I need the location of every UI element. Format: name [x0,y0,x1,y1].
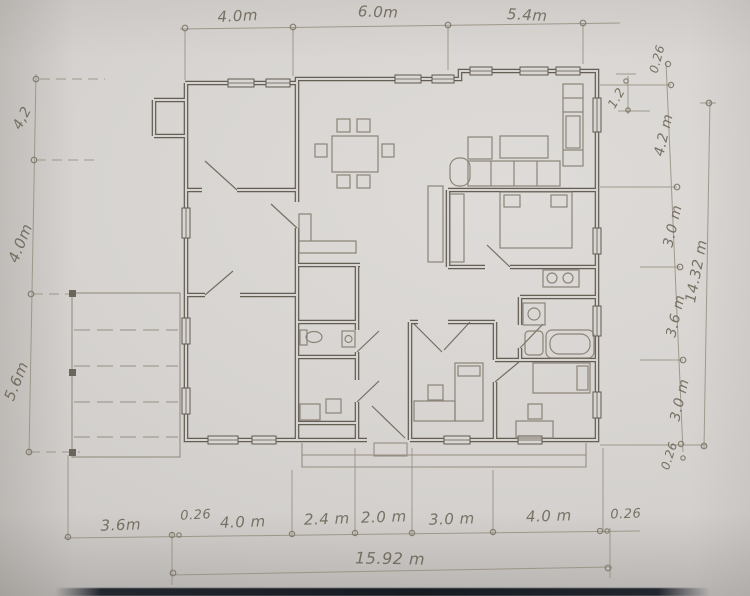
dim-top-1: 4.0m [217,6,258,26]
dim-right-6: 3.0 m [667,377,692,422]
dim-left-2: 4.0m [4,221,36,265]
living-room-furniture [450,84,583,186]
dim-bottom-6: 3.0 m [429,509,475,529]
dim-bottom-1: 3.6m [100,515,141,534]
dim-bottom-total: 15.92 m [355,548,425,568]
terrace-deck [69,290,180,457]
desk-edge-shadow [55,588,710,596]
dim-bottom-5: 2.0 m [361,507,407,527]
dim-top-2: 6.0m [358,2,399,21]
kitchen-counter [299,214,356,253]
entry-porch [302,443,586,467]
appliance-counter [543,270,579,287]
dim-right-4: 3.0 m [660,203,685,248]
dim-left-1: 4,2 [10,104,35,132]
bedroom-middle-furniture [414,363,483,421]
dim-right-1: 0.26 [647,43,668,74]
floor-plan-photo: 4.0m 6.0m 5.4m 4,2 4.0m 5.6m 0.26 1.2 4.… [0,0,750,596]
master-bedroom-furniture [428,186,572,262]
dim-bottom-8: 0.26 [610,506,641,522]
dining-table-set [315,119,394,188]
dim-right-3: 4.2 m [651,112,676,157]
dim-bottom-7: 4.0 m [526,506,572,526]
windows [182,67,601,444]
storage-room-items [300,399,341,420]
bedroom-right-furniture [516,363,590,438]
wc-center-fixtures [300,330,355,347]
dim-left-3: 5.6m [0,359,32,403]
dim-bottom-3: 4.0 m [220,512,266,532]
door-leaves [205,161,543,438]
bathroom-right-fixtures [523,303,594,358]
plan-svg: 4.0m 6.0m 5.4m 4,2 4.0m 5.6m 0.26 1.2 4.… [0,0,750,596]
window-midlines [186,71,597,440]
dim-top-3: 5.4m [507,5,548,25]
dim-bottom-2: 0.26 [180,507,212,524]
dim-bottom-4: 2.4 m [304,509,350,529]
dim-right-2: 1.2 [604,85,628,111]
